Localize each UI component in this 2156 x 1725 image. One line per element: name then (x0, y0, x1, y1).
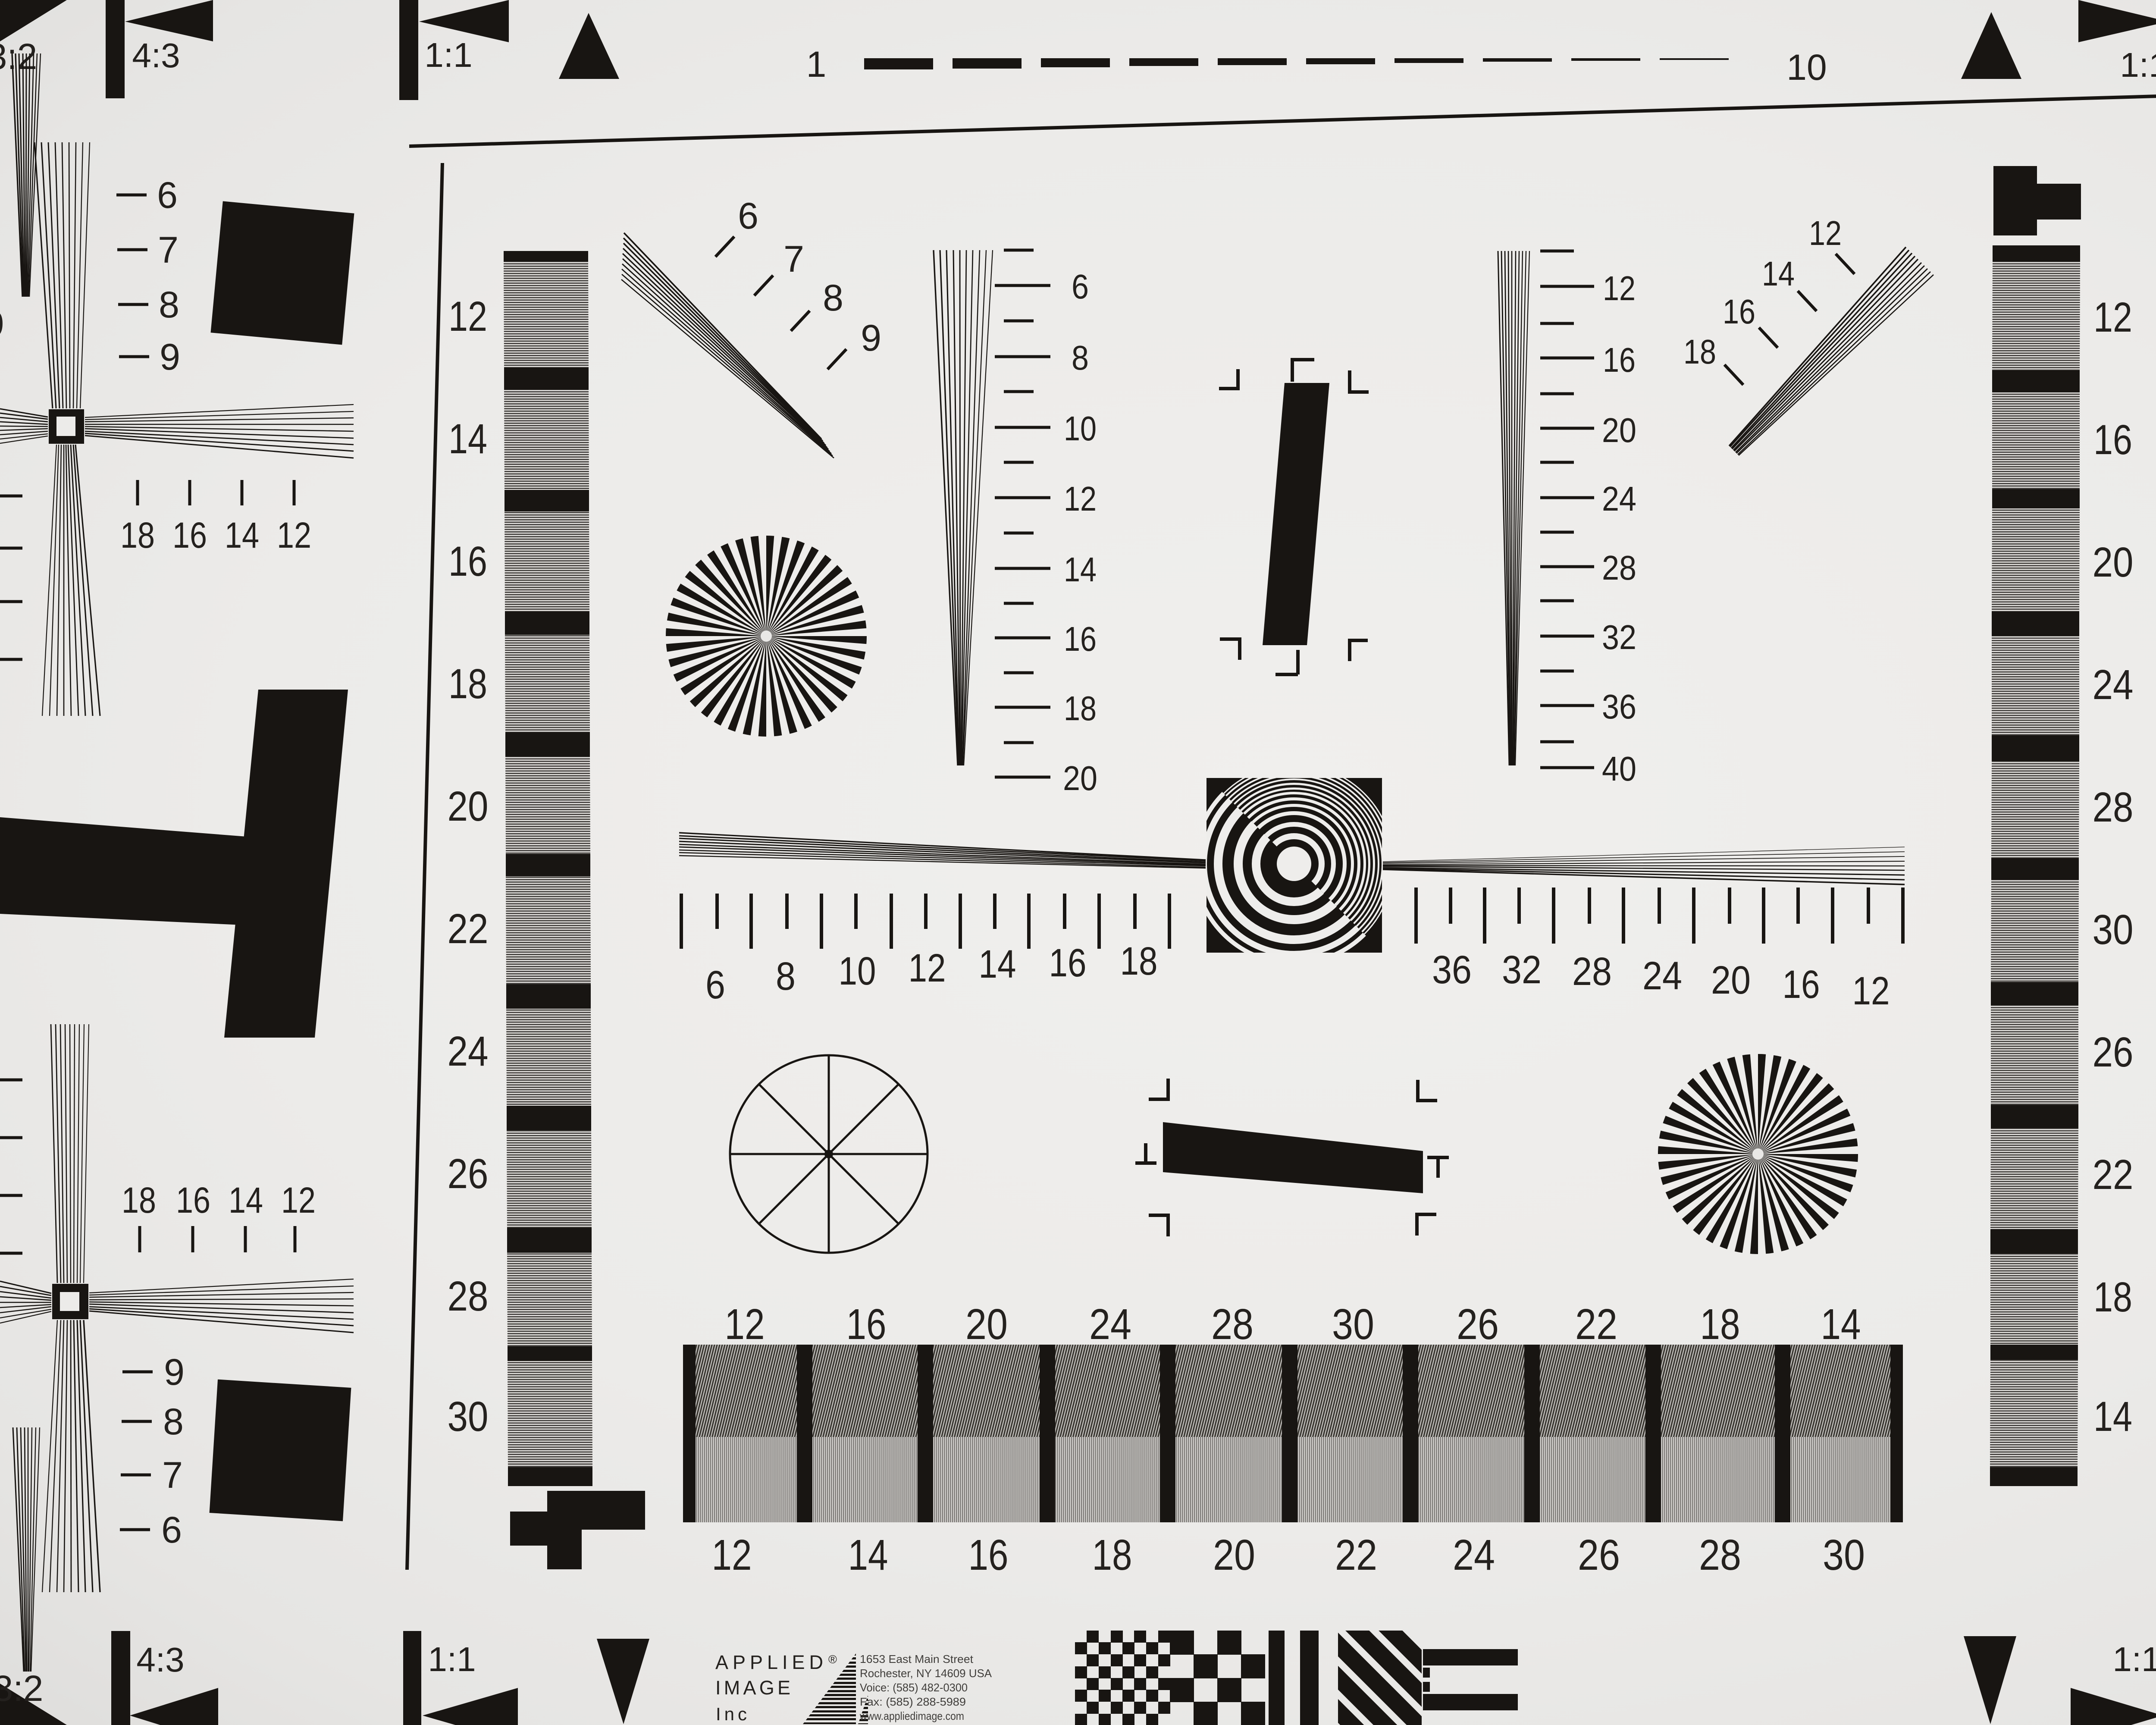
svg-text:16: 16 (1064, 620, 1097, 658)
svg-text:Fax: (585) 288-5989: Fax: (585) 288-5989 (860, 1695, 966, 1708)
svg-text:24: 24 (1089, 1300, 1131, 1349)
svg-text:Rochester, NY 14609 USA: Rochester, NY 14609 USA (860, 1667, 992, 1680)
svg-text:9: 9 (164, 1352, 185, 1393)
svg-text:28: 28 (448, 1273, 489, 1320)
svg-text:14: 14 (848, 1531, 888, 1579)
svg-text:12: 12 (1603, 269, 1636, 307)
svg-text:26: 26 (2093, 1029, 2134, 1076)
svg-text:18: 18 (120, 515, 155, 555)
svg-text:22: 22 (1575, 1300, 1617, 1349)
svg-text:14: 14 (229, 1180, 263, 1220)
svg-text:12: 12 (1852, 969, 1890, 1013)
svg-text:18: 18 (1683, 332, 1716, 371)
svg-text:9: 9 (0, 304, 4, 345)
svg-text:7: 7 (162, 1455, 183, 1496)
svg-text:3:2: 3:2 (0, 1668, 43, 1709)
svg-text:40: 40 (1602, 750, 1636, 788)
svg-text:10: 10 (839, 949, 876, 993)
svg-text:12: 12 (712, 1531, 752, 1579)
svg-text:10: 10 (1064, 409, 1097, 448)
svg-text:20: 20 (965, 1300, 1008, 1349)
svg-text:18: 18 (1092, 1531, 1132, 1579)
svg-text:Voice: (585) 482-0300: Voice: (585) 482-0300 (860, 1681, 968, 1694)
svg-text:1:1: 1:1 (424, 36, 472, 74)
svg-text:24: 24 (1453, 1531, 1495, 1579)
svg-text:24: 24 (448, 1028, 489, 1075)
svg-text:6: 6 (157, 175, 178, 216)
svg-text:8: 8 (776, 954, 796, 998)
svg-text:16: 16 (172, 515, 207, 555)
svg-text:1: 1 (806, 44, 827, 85)
svg-text:28: 28 (1699, 1531, 1741, 1579)
svg-text:20: 20 (1602, 411, 1636, 449)
svg-text:IMAGE: IMAGE (715, 1677, 790, 1699)
svg-text:26: 26 (1578, 1531, 1620, 1579)
svg-text:www.appliedimage.com: www.appliedimage.com (859, 1709, 964, 1722)
svg-text:1:1: 1:1 (2120, 46, 2156, 84)
svg-text:20: 20 (1063, 759, 1097, 797)
svg-text:12: 12 (281, 1180, 316, 1220)
svg-text:®: ® (828, 1653, 837, 1666)
svg-text:12: 12 (448, 293, 487, 340)
svg-text:22: 22 (448, 905, 489, 952)
svg-text:14: 14 (448, 415, 487, 462)
svg-text:18: 18 (448, 660, 487, 707)
svg-text:24: 24 (1602, 480, 1636, 518)
svg-text:16: 16 (2093, 416, 2132, 463)
svg-text:26: 26 (1457, 1300, 1499, 1349)
svg-text:20: 20 (2093, 539, 2134, 586)
svg-text:28: 28 (1602, 549, 1636, 587)
svg-text:18: 18 (2093, 1273, 2132, 1320)
svg-text:18: 18 (1120, 939, 1158, 983)
svg-text:36: 36 (1432, 948, 1472, 992)
svg-text:14: 14 (1762, 254, 1795, 293)
svg-text:30: 30 (1823, 1531, 1865, 1579)
svg-text:16: 16 (176, 1180, 210, 1220)
svg-text:28: 28 (1572, 950, 1612, 994)
svg-text:18: 18 (1064, 689, 1097, 728)
svg-text:20: 20 (1711, 958, 1751, 1002)
svg-text:16: 16 (1783, 963, 1820, 1007)
svg-text:7: 7 (158, 229, 179, 271)
svg-text:24: 24 (2093, 661, 2134, 708)
svg-text:4:3: 4:3 (132, 36, 180, 75)
svg-text:Inc: Inc (716, 1704, 747, 1724)
svg-text:12: 12 (725, 1300, 765, 1349)
svg-text:36: 36 (1602, 687, 1636, 726)
svg-text:16: 16 (1603, 341, 1636, 379)
svg-text:8: 8 (163, 1401, 184, 1443)
svg-text:32: 32 (1502, 948, 1542, 992)
svg-text:22: 22 (1335, 1531, 1377, 1579)
svg-text:32: 32 (1602, 618, 1636, 656)
svg-text:6: 6 (161, 1509, 182, 1551)
svg-text:16: 16 (1723, 292, 1755, 331)
svg-text:9: 9 (160, 336, 180, 378)
svg-text:6: 6 (705, 963, 725, 1007)
svg-text:18: 18 (1700, 1300, 1740, 1349)
svg-text:16: 16 (968, 1531, 1009, 1579)
svg-text:20: 20 (1213, 1531, 1255, 1579)
svg-text:26: 26 (448, 1150, 489, 1197)
svg-text:4:3: 4:3 (136, 1640, 184, 1679)
svg-text:8: 8 (823, 277, 843, 319)
svg-text:14: 14 (225, 515, 259, 555)
svg-text:6: 6 (1072, 267, 1089, 306)
svg-text:14: 14 (979, 942, 1016, 986)
svg-text:12: 12 (1809, 214, 1842, 252)
svg-text:30: 30 (448, 1393, 489, 1440)
svg-text:16: 16 (846, 1300, 887, 1349)
svg-text:12: 12 (277, 515, 311, 555)
svg-text:6: 6 (738, 195, 758, 237)
svg-text:30: 30 (1332, 1300, 1374, 1349)
svg-text:1:1: 1:1 (428, 1640, 476, 1678)
svg-text:20: 20 (448, 783, 489, 830)
svg-text:8: 8 (159, 284, 179, 326)
svg-text:30: 30 (2093, 906, 2134, 953)
svg-text:24: 24 (1642, 954, 1682, 998)
svg-text:14: 14 (1064, 550, 1097, 589)
svg-text:28: 28 (2093, 784, 2134, 831)
svg-text:12: 12 (909, 946, 946, 990)
svg-text:18: 18 (122, 1180, 156, 1220)
svg-text:16: 16 (1049, 941, 1087, 985)
svg-text:22: 22 (2093, 1151, 2134, 1198)
svg-text:14: 14 (2093, 1393, 2132, 1440)
svg-text:14: 14 (1821, 1300, 1861, 1349)
svg-text:10: 10 (1786, 47, 1827, 88)
svg-text:16: 16 (448, 538, 487, 585)
svg-text:28: 28 (1211, 1300, 1253, 1349)
svg-text:8: 8 (1072, 339, 1089, 377)
svg-text:9: 9 (861, 317, 881, 359)
svg-text:7: 7 (783, 238, 804, 280)
svg-text:1:1: 1:1 (2112, 1640, 2156, 1678)
svg-text:1653 East Main Street: 1653 East Main Street (860, 1653, 974, 1665)
svg-text:12: 12 (2093, 294, 2132, 341)
svg-text:12: 12 (1064, 480, 1097, 518)
